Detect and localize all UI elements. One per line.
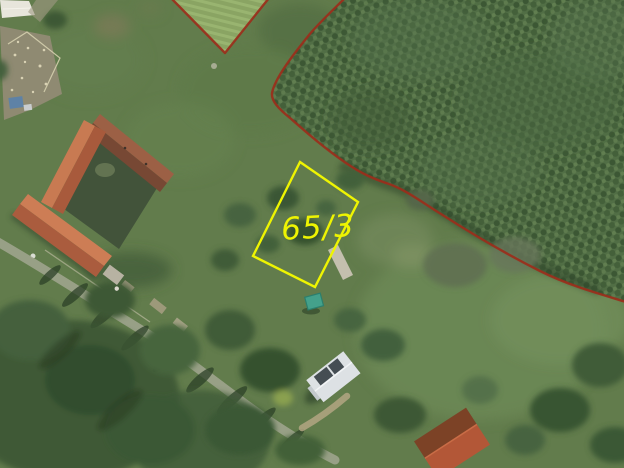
parcel-65-3-label: 65/3 [280, 208, 355, 248]
aerial-map: 65/3 [0, 0, 624, 468]
light-spot [211, 63, 217, 69]
